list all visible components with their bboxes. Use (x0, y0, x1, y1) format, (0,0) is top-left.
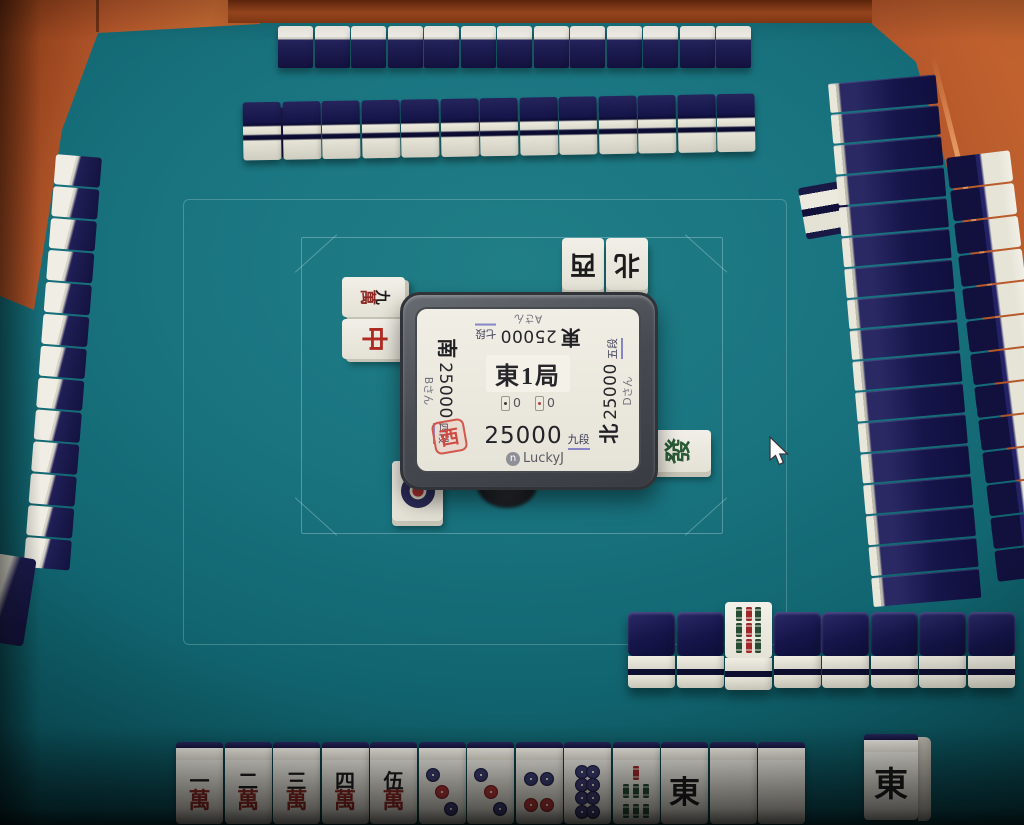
pin-circle (484, 785, 498, 799)
man-character: 萬 (285, 791, 307, 811)
wall-tile-stack (558, 96, 597, 155)
hand-tile-p3[interactable] (467, 742, 514, 824)
standing-tile-back (424, 26, 459, 68)
hand-tile-m5[interactable]: 伍萬 (370, 742, 417, 824)
sou-stick (736, 623, 742, 637)
dead-wall-stack (871, 612, 918, 688)
standing-tile-back (26, 505, 74, 539)
standing-tile-back (41, 314, 89, 348)
tile-face: 東 (864, 752, 918, 820)
tile-face (613, 760, 660, 824)
dead-wall-stack (774, 612, 821, 688)
tile-face-W: 西 (570, 251, 596, 277)
tile-face (758, 760, 805, 824)
honba-counter: 0 (501, 395, 521, 411)
sou-stick (746, 623, 752, 637)
hand-tile-E[interactable]: 東 (661, 742, 708, 824)
dead-wall-stack (677, 612, 724, 688)
sou-stick (643, 784, 649, 798)
sou-stick (633, 766, 639, 780)
tile-face (467, 760, 514, 824)
wall-tile-stack (243, 102, 282, 161)
man-character: 萬 (382, 791, 404, 811)
pin-tile-glyph (422, 763, 462, 821)
sou-stick (633, 784, 639, 798)
tile-face-E: 東 (874, 769, 908, 803)
standing-tile-back (315, 26, 350, 68)
tile-face-m2: 二萬 (237, 773, 259, 812)
tile-face: 四萬 (322, 760, 369, 824)
standing-tile-back (34, 409, 82, 443)
round-label: 東1局 (486, 355, 570, 392)
pin-circle (586, 805, 600, 819)
standing-tile-back (51, 186, 99, 220)
dead-wall-stack (919, 612, 966, 688)
drawn-tile-area: 東 (864, 734, 931, 821)
sou-stick (746, 607, 752, 621)
seat-wind-stamp: 西 (430, 417, 468, 455)
standing-tile-back (958, 248, 1024, 287)
tile-bevel (661, 748, 708, 760)
tile-back (822, 612, 869, 656)
wall-tile-stack (519, 97, 558, 156)
tile-face: 一萬 (176, 760, 223, 824)
standing-tile-back (990, 510, 1024, 549)
honor-tile-glyph: 發 (666, 438, 692, 464)
tile-bevel (322, 748, 369, 760)
south-player-discards: 九萬中 (342, 277, 405, 359)
discard-tile-C: 中 (342, 319, 405, 359)
round-info: 東1局 0 0 (417, 355, 639, 411)
hand-tile-p8[interactable] (564, 742, 611, 824)
tile-face: 東 (661, 760, 708, 824)
man-character: 萬 (334, 791, 356, 811)
tile-side (677, 675, 724, 688)
dead-wall (628, 612, 1015, 690)
standing-tile-back (570, 26, 605, 68)
tile-side (725, 677, 772, 690)
tile-face-s9 (730, 605, 768, 655)
standing-tile-back (36, 378, 84, 412)
tile-face-p3 (422, 763, 462, 821)
standing-tile-back (978, 412, 1024, 451)
dead-wall-stack (968, 612, 1015, 688)
tile-face (710, 760, 757, 824)
standing-tile-back (39, 346, 87, 380)
standing-tile-back (388, 26, 423, 68)
pin-circle (524, 772, 538, 786)
standing-tile-back (962, 281, 1024, 320)
tile-back (919, 612, 966, 656)
tile-side (725, 658, 772, 671)
tile-back (628, 612, 675, 656)
wall-tile-stack (282, 101, 321, 160)
standing-tile-back (950, 183, 1017, 222)
dora-indicator-tile (725, 602, 772, 690)
tile-face: 二萬 (225, 760, 272, 824)
wall-tile-stack (677, 94, 716, 153)
frame-seam (96, 0, 99, 32)
bottom-player-info: 西 25000 九段 n LuckyJ (417, 423, 639, 466)
top-player-name: Aさん (417, 312, 639, 324)
hand-tile-haku[interactable] (710, 742, 757, 824)
hand-tile-haku[interactable] (758, 742, 805, 824)
discard-tile-glyph: 中 (360, 326, 386, 352)
pin-circle (435, 785, 449, 799)
tile-bevel (564, 748, 611, 760)
tile-face-m9: 九萬 (359, 289, 388, 305)
pin-circle (586, 765, 600, 779)
honor-tile-glyph: 北 (614, 251, 640, 277)
sou-stick (623, 804, 629, 818)
tile-face-N: 北 (614, 251, 640, 277)
tile-back (774, 612, 821, 656)
wall-tile-stack (716, 94, 755, 153)
tile-bevel (758, 748, 805, 760)
hand-tile-m2[interactable]: 二萬 (225, 742, 272, 824)
tile-side (968, 675, 1015, 688)
standing-tile-back (534, 26, 569, 68)
man-tile-glyph: 一萬 (188, 773, 210, 812)
tile-side (677, 656, 724, 669)
tile-back (677, 612, 724, 656)
sou-stick (623, 784, 629, 798)
standing-tile-back (54, 154, 102, 188)
discard-tile-N: 北 (606, 238, 648, 290)
discard-tile-W: 西 (562, 238, 604, 290)
tile-face-p3 (471, 763, 511, 821)
tile-bevel (613, 748, 660, 760)
wall-tile-stack (598, 96, 637, 155)
tile-face-E: 東 (669, 777, 700, 808)
tile-side (871, 656, 918, 669)
tile-face (564, 760, 611, 824)
wall-tile-stack (440, 98, 479, 157)
player-badge-icon: n (506, 452, 520, 466)
honor-tile-glyph: 西 (570, 251, 596, 277)
man-character: 萬 (188, 791, 210, 811)
bottom-player-name: n LuckyJ (431, 451, 639, 466)
pin-circle (444, 802, 458, 816)
wall-tile-stack (322, 100, 361, 159)
discard-tile-m9: 九萬 (342, 277, 405, 317)
wall-tile-stack (401, 99, 440, 158)
standing-tile-back (44, 282, 92, 316)
tile-face: 伍萬 (370, 760, 417, 824)
top-player-score: 25000 (500, 326, 557, 346)
sou-stick (755, 623, 761, 637)
pin-circle (426, 768, 440, 782)
standing-tile-back (680, 26, 715, 68)
standing-tile-back (643, 26, 678, 68)
discard-tile-glyph: 九萬 (359, 289, 388, 305)
tile-face-m4: 四萬 (334, 773, 356, 812)
east-player-discards: 西北 (562, 238, 648, 290)
standing-tile-back (982, 445, 1024, 484)
man-tile-glyph: 九萬 (359, 289, 388, 305)
sou-stick (736, 639, 742, 653)
tile-side (628, 656, 675, 669)
pin-circle (474, 768, 488, 782)
tile-bevel (516, 748, 563, 760)
tile-face-C: 中 (360, 326, 386, 352)
tile-back (871, 612, 918, 656)
honba-stick-icon (501, 396, 510, 411)
top-player-hand (278, 26, 751, 68)
tile-face-m1: 一萬 (188, 773, 210, 812)
mouse-cursor-icon (769, 436, 791, 472)
hand-tile-p4[interactable] (516, 742, 563, 824)
standing-tile-back (31, 441, 79, 475)
standing-tile-back (974, 379, 1024, 418)
wall-tile-stack (637, 95, 676, 154)
standing-tile-back (29, 473, 77, 507)
standing-tile-back (716, 26, 751, 68)
tile-bevel (273, 748, 320, 760)
man-character: 萬 (359, 289, 374, 305)
hand-tile-m3[interactable]: 三萬 (273, 742, 320, 824)
pin-circle (493, 802, 507, 816)
pin-circle (540, 772, 554, 786)
stick-counters: 0 0 (417, 395, 639, 411)
dead-wall-stack (628, 612, 675, 688)
standing-tile-back (351, 26, 386, 68)
tile-side (919, 675, 966, 688)
tile-face: 三萬 (273, 760, 320, 824)
dead-wall-stack (822, 612, 869, 688)
riichi-stick-icon (535, 396, 544, 411)
man-tile-glyph: 三萬 (285, 773, 307, 812)
man-tile-glyph: 伍萬 (382, 773, 404, 812)
pin-tile-glyph (471, 763, 511, 821)
sou-stick (755, 639, 761, 653)
wall-tile-stack (361, 100, 400, 159)
tile-bevel (176, 748, 223, 760)
bottom-player-rank: 九段 (568, 431, 590, 450)
bottom-player-score: 25000 (484, 423, 562, 449)
tile-face-m5: 伍萬 (382, 773, 404, 812)
man-number: 九 (374, 289, 388, 304)
sou-stick (755, 607, 761, 621)
pin-tile-glyph (519, 763, 559, 821)
sou-stick (633, 804, 639, 818)
tile-side (968, 656, 1015, 669)
own-hand: 一萬二萬三萬四萬伍萬東 (176, 742, 805, 824)
tile-bevel (710, 748, 757, 760)
standing-tile-back (986, 478, 1024, 517)
pin-tile-glyph (568, 763, 608, 821)
tile-side (774, 656, 821, 669)
center-info-panel: 東 25000 七段 Aさん 南 25000 四段 Bさん 北 25000 (415, 307, 641, 473)
tile-side (628, 675, 675, 688)
top-player-wind: 東 (561, 325, 581, 354)
pin-circle (586, 778, 600, 792)
standing-tile-back (497, 26, 532, 68)
tile-face-p8 (568, 763, 608, 821)
standing-tile-back (46, 250, 94, 284)
sou-tile-glyph (616, 763, 656, 821)
top-wall (243, 94, 756, 161)
tile-side (822, 675, 869, 688)
discard-tile-glyph: 北 (614, 251, 640, 277)
tile-side (871, 675, 918, 688)
man-tile-glyph: 二萬 (237, 773, 259, 812)
tile-side (774, 675, 821, 688)
tile-face-m3: 三萬 (285, 773, 307, 812)
honor-tile-glyph: 東 (874, 769, 908, 803)
sou-stick (736, 607, 742, 621)
mahjong-table: 西北 九萬中 發 東 25000 七段 Aさん 南 25000 四段 Bさん (0, 0, 1024, 825)
honor-tile-glyph: 中 (360, 326, 386, 352)
tile-face (516, 760, 563, 824)
standing-tile-back (278, 26, 313, 68)
standing-tile-back (970, 347, 1024, 386)
sou-stick (746, 639, 752, 653)
tile-side (919, 656, 966, 669)
tile-bevel (225, 748, 272, 760)
standing-tile-back (946, 150, 1013, 189)
man-tile-glyph: 四萬 (334, 773, 356, 812)
riichi-counter: 0 (535, 395, 555, 411)
sou-tile-glyph (730, 605, 768, 655)
man-character: 萬 (237, 791, 259, 811)
table-frame-top (228, 0, 928, 23)
tile-face-s7 (616, 763, 656, 821)
discard-tile-glyph: 發 (666, 438, 692, 464)
tile-side-face (918, 737, 931, 821)
hand-tile-m4[interactable]: 四萬 (322, 742, 369, 824)
standing-tile-back (49, 218, 97, 252)
hand-tile-p3[interactable] (419, 742, 466, 824)
standing-tile-back (994, 543, 1024, 582)
drawn-tile-E[interactable]: 東 (864, 734, 918, 821)
honor-tile-glyph: 東 (669, 777, 700, 808)
standing-tile-back (954, 216, 1021, 255)
standing-tile-back (607, 26, 642, 68)
center-display: 東 25000 七段 Aさん 南 25000 四段 Bさん 北 25000 (400, 292, 658, 490)
tile-bevel (864, 740, 918, 752)
dora-tile-face (725, 602, 772, 658)
pin-circle (586, 791, 600, 805)
pin-circle (540, 798, 554, 812)
discard-tile-glyph: 西 (570, 251, 596, 277)
standing-tile-back (461, 26, 496, 68)
top-player-rank: 七段 (475, 324, 496, 342)
hand-tile-s7[interactable] (613, 742, 660, 824)
tile-side (822, 656, 869, 669)
tile-face-p4 (519, 763, 559, 821)
tile-face (419, 760, 466, 824)
tile-bevel (419, 748, 466, 760)
tile-bevel (370, 748, 417, 760)
tile-back (968, 612, 1015, 656)
tile-bevel (467, 748, 514, 760)
standing-tile-back (966, 314, 1024, 353)
pin-circle (524, 798, 538, 812)
hand-tile-m1[interactable]: 一萬 (176, 742, 223, 824)
wall-tile-stack (479, 98, 518, 157)
tile-face-F: 發 (666, 438, 692, 464)
sou-stick (643, 804, 649, 818)
